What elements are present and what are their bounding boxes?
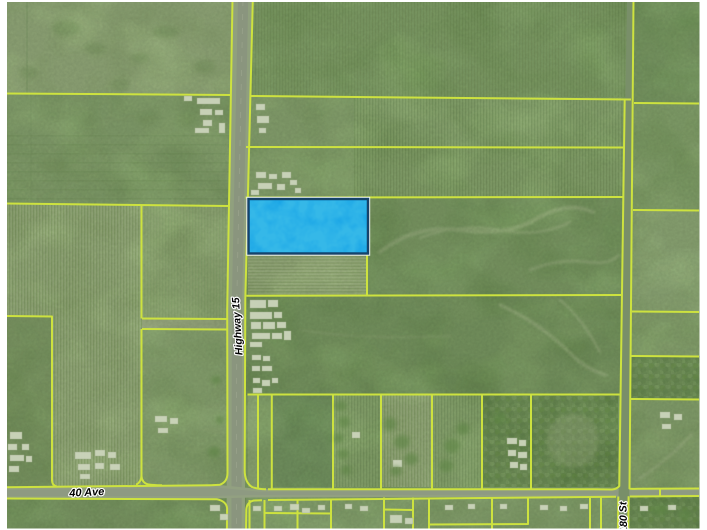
svg-text:180 St: 180 St (617, 501, 630, 530)
svg-text:40 Ave: 40 Ave (68, 486, 105, 500)
